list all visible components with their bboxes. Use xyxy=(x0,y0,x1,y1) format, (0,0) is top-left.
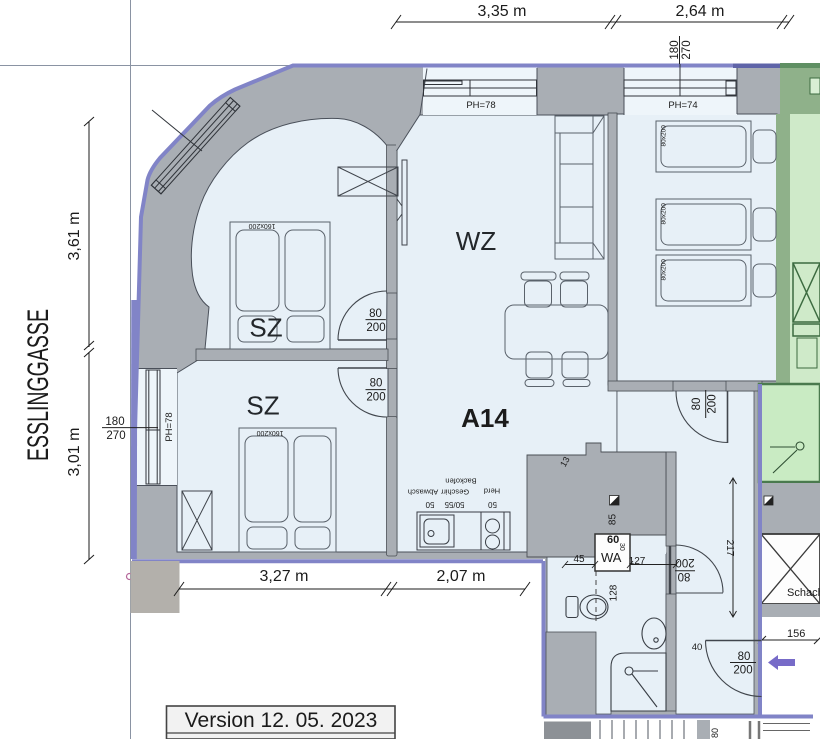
svg-text:50: 50 xyxy=(488,500,497,509)
svg-text:156: 156 xyxy=(787,628,805,640)
svg-text:3,35 m: 3,35 m xyxy=(478,3,527,20)
svg-text:Backofen: Backofen xyxy=(445,477,476,486)
svg-text:80: 80 xyxy=(691,398,703,411)
svg-text:3,61 m: 3,61 m xyxy=(66,212,83,261)
svg-text:200: 200 xyxy=(366,392,385,404)
svg-text:80x200: 80x200 xyxy=(661,203,668,225)
svg-text:200: 200 xyxy=(366,322,385,334)
svg-text:A14: A14 xyxy=(461,403,509,433)
svg-text:200: 200 xyxy=(707,394,719,413)
svg-text:2,07 m: 2,07 m xyxy=(437,568,486,585)
svg-text:WA: WA xyxy=(601,550,622,565)
svg-text:80x200: 80x200 xyxy=(661,259,668,281)
svg-text:50/55: 50/55 xyxy=(444,500,465,509)
svg-text:270: 270 xyxy=(106,430,125,442)
svg-text:PH=78: PH=78 xyxy=(466,100,495,111)
svg-text:Abwasch: Abwasch xyxy=(408,488,438,497)
svg-text:Version 12. 05. 2023: Version 12. 05. 2023 xyxy=(185,709,378,732)
svg-text:SZ: SZ xyxy=(249,313,282,343)
svg-text:Herd: Herd xyxy=(484,487,500,496)
svg-text:80: 80 xyxy=(710,728,720,738)
svg-text:2,64 m: 2,64 m xyxy=(676,3,725,20)
svg-text:80: 80 xyxy=(369,308,382,320)
svg-text:45: 45 xyxy=(573,554,585,565)
svg-text:Geschirr: Geschirr xyxy=(440,488,469,497)
svg-text:PH=74: PH=74 xyxy=(668,100,697,111)
svg-text:Schacht: Schacht xyxy=(787,587,820,599)
svg-text:217: 217 xyxy=(724,540,735,557)
svg-text:ESSLINGGASSE: ESSLINGGASSE xyxy=(22,309,55,461)
svg-text:85: 85 xyxy=(608,514,619,526)
svg-text:WZ: WZ xyxy=(456,226,497,256)
svg-text:3,01 m: 3,01 m xyxy=(66,428,83,477)
svg-text:270: 270 xyxy=(681,40,693,59)
svg-text:3,27 m: 3,27 m xyxy=(260,568,309,585)
svg-text:SZ: SZ xyxy=(246,391,279,421)
svg-text:160x200: 160x200 xyxy=(249,222,276,229)
svg-text:180: 180 xyxy=(105,416,124,428)
svg-text:60: 60 xyxy=(607,534,619,546)
svg-text:127: 127 xyxy=(629,556,646,567)
svg-text:128: 128 xyxy=(609,584,620,601)
svg-text:50: 50 xyxy=(425,500,434,509)
svg-text:80x200: 80x200 xyxy=(661,125,668,147)
svg-text:80: 80 xyxy=(738,651,751,663)
svg-text:80: 80 xyxy=(370,378,383,390)
svg-text:80: 80 xyxy=(678,570,691,582)
svg-text:40: 40 xyxy=(692,642,703,653)
svg-text:PH=78: PH=78 xyxy=(164,412,175,441)
svg-text:200: 200 xyxy=(733,665,752,677)
svg-text:160x200: 160x200 xyxy=(257,429,284,436)
